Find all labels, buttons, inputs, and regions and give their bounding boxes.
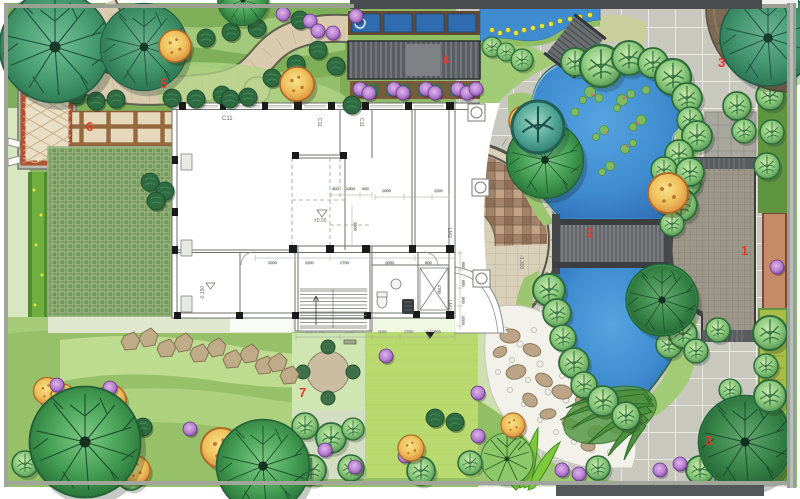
svg-text:800: 800 — [434, 329, 441, 334]
svg-text:1700: 1700 — [404, 329, 414, 334]
svg-text:2: 2 — [586, 225, 593, 240]
svg-text:800: 800 — [425, 260, 432, 265]
svg-text:-0.150: -0.150 — [200, 286, 206, 300]
svg-text:C11: C11 — [316, 118, 322, 127]
svg-text:1000: 1000 — [461, 316, 466, 326]
svg-text:C11: C11 — [358, 118, 364, 127]
svg-text:C11: C11 — [222, 116, 233, 122]
svg-text:1700: 1700 — [340, 260, 350, 265]
svg-text:1: 1 — [741, 243, 748, 258]
svg-text:7: 7 — [299, 385, 306, 400]
svg-text:LM2: LM2 — [446, 228, 452, 238]
svg-text:-3.300: -3.300 — [518, 255, 524, 269]
svg-text:260X3=780: 260X3=780 — [305, 329, 326, 334]
svg-text:1000: 1000 — [268, 260, 278, 265]
svg-text:2800: 2800 — [353, 222, 358, 232]
svg-text:650: 650 — [461, 280, 466, 287]
svg-text:±0.00: ±0.00 — [314, 218, 327, 224]
svg-text:LM2: LM2 — [446, 300, 452, 310]
svg-text:1750: 1750 — [437, 285, 442, 295]
svg-text:3: 3 — [718, 55, 725, 70]
svg-text:1600: 1600 — [382, 188, 392, 193]
svg-text:1100: 1100 — [378, 329, 387, 334]
svg-text:900: 900 — [461, 297, 466, 304]
svg-text:6: 6 — [86, 119, 93, 134]
svg-text:1100: 1100 — [434, 188, 443, 193]
svg-text:1000: 1000 — [345, 329, 355, 334]
svg-text:4: 4 — [442, 52, 450, 67]
svg-text:400: 400 — [362, 186, 369, 191]
svg-text:400: 400 — [332, 186, 339, 191]
svg-text:3: 3 — [705, 433, 712, 448]
svg-text:5: 5 — [160, 76, 167, 91]
svg-text:1000: 1000 — [385, 260, 395, 265]
svg-text:1300: 1300 — [346, 186, 356, 191]
svg-text:1100: 1100 — [305, 260, 314, 265]
svg-text:650: 650 — [461, 262, 466, 269]
